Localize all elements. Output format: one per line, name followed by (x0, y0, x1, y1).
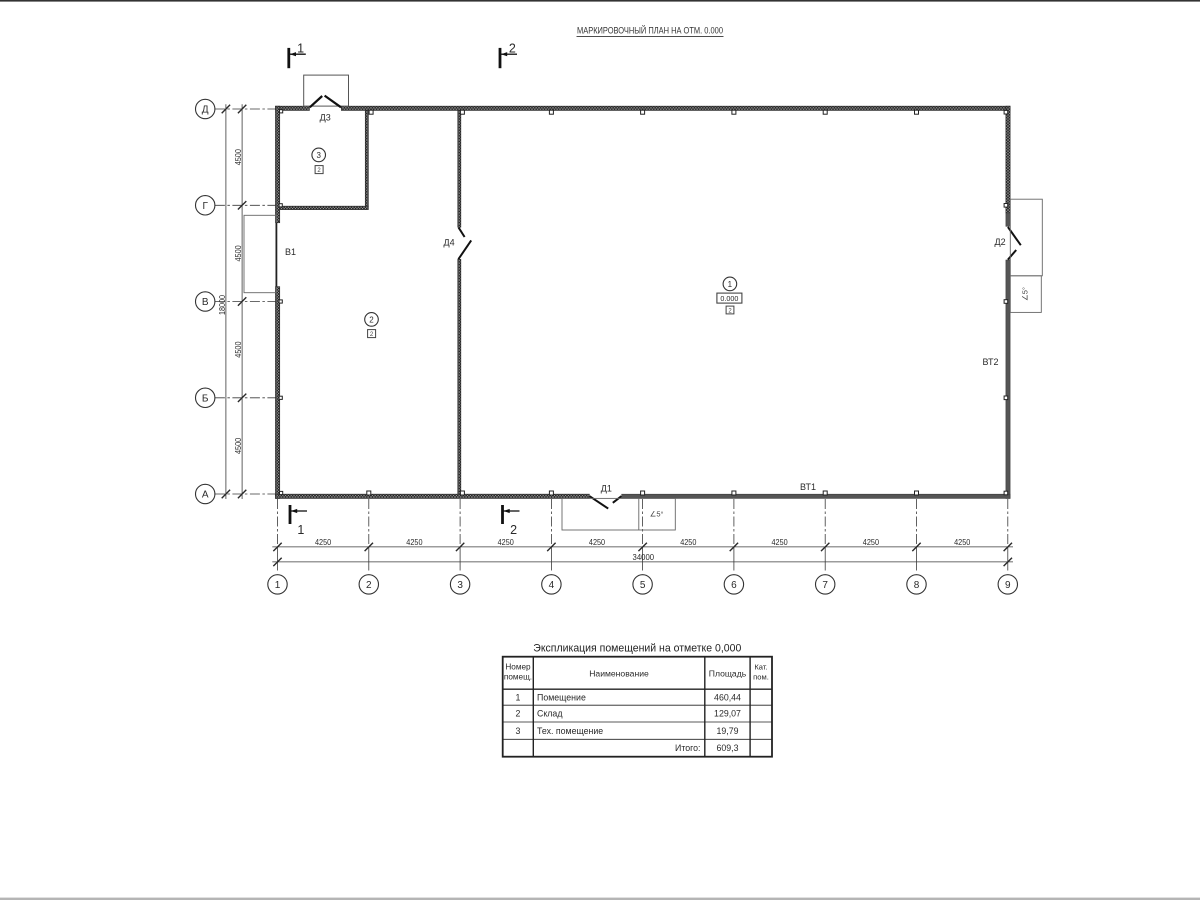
svg-text:Наименование: Наименование (589, 668, 649, 678)
svg-text:ВТ2: ВТ2 (983, 357, 999, 367)
svg-text:8: 8 (914, 580, 920, 591)
svg-text:19,79: 19,79 (716, 726, 738, 736)
svg-text:В: В (202, 297, 209, 308)
svg-text:4250: 4250 (680, 537, 696, 547)
svg-text:4250: 4250 (863, 537, 879, 547)
svg-text:0.000: 0.000 (720, 294, 738, 303)
svg-text:4250: 4250 (498, 537, 514, 547)
svg-text:Итого:: Итого: (675, 743, 701, 753)
svg-text:∠5°: ∠5° (650, 509, 664, 518)
svg-text:4250: 4250 (406, 537, 422, 547)
svg-text:Г: Г (202, 201, 208, 212)
svg-text:пом.: пом. (753, 673, 769, 682)
svg-text:4: 4 (549, 580, 555, 591)
svg-text:Д3: Д3 (320, 113, 331, 123)
svg-text:9: 9 (1005, 580, 1011, 591)
svg-text:Б: Б (202, 393, 209, 404)
svg-text:4250: 4250 (954, 537, 970, 547)
svg-text:В1: В1 (285, 247, 296, 257)
svg-text:2: 2 (369, 315, 374, 324)
svg-text:МАРКИРОВОЧНЫЙ ПЛАН НА ОТМ. 0.0: МАРКИРОВОЧНЫЙ ПЛАН НА ОТМ. 0.000 (577, 25, 723, 37)
svg-text:А: А (202, 490, 209, 501)
svg-text:1: 1 (297, 42, 304, 56)
svg-text:ВТ1: ВТ1 (800, 482, 816, 492)
svg-text:2: 2 (510, 523, 517, 537)
svg-text:129,07: 129,07 (714, 709, 741, 719)
svg-text:5: 5 (640, 580, 646, 591)
svg-text:2: 2 (366, 580, 372, 591)
svg-text:Кат.: Кат. (754, 663, 767, 672)
svg-text:4500: 4500 (233, 245, 243, 261)
svg-text:4250: 4250 (772, 537, 788, 547)
svg-text:6: 6 (731, 580, 737, 591)
svg-text:18000: 18000 (217, 295, 227, 315)
svg-text:4250: 4250 (315, 537, 331, 547)
svg-text:Площадь: Площадь (709, 668, 747, 678)
svg-text:помещ.: помещ. (504, 673, 532, 682)
svg-text:2: 2 (509, 42, 516, 56)
svg-text:Д4: Д4 (443, 237, 454, 247)
svg-text:609,3: 609,3 (716, 743, 738, 753)
svg-text:Д2: Д2 (994, 237, 1005, 247)
svg-text:4250: 4250 (589, 537, 605, 547)
svg-text:1: 1 (297, 523, 304, 537)
svg-text:2: 2 (516, 709, 521, 719)
svg-text:∠5°: ∠5° (1021, 287, 1030, 301)
svg-text:Номер: Номер (505, 663, 531, 672)
svg-text:Помещение: Помещение (537, 692, 586, 702)
svg-text:1: 1 (275, 580, 281, 591)
svg-text:Тех. помещение: Тех. помещение (537, 726, 603, 736)
svg-text:4500: 4500 (233, 438, 243, 454)
svg-text:Склад: Склад (537, 709, 562, 719)
svg-text:3: 3 (316, 151, 321, 160)
svg-text:1: 1 (728, 280, 733, 289)
svg-text:1: 1 (516, 692, 521, 702)
svg-text:7: 7 (822, 580, 828, 591)
svg-text:34000: 34000 (633, 552, 655, 562)
svg-text:4500: 4500 (233, 149, 243, 165)
svg-text:Экспликация помещений на отмет: Экспликация помещений на отметке 0,000 (533, 642, 741, 654)
svg-text:Д: Д (202, 105, 209, 116)
svg-text:4500: 4500 (233, 341, 243, 357)
svg-text:3: 3 (516, 726, 521, 736)
svg-text:460,44: 460,44 (714, 692, 741, 702)
svg-text:3: 3 (457, 580, 463, 591)
svg-text:Д1: Д1 (601, 484, 612, 494)
